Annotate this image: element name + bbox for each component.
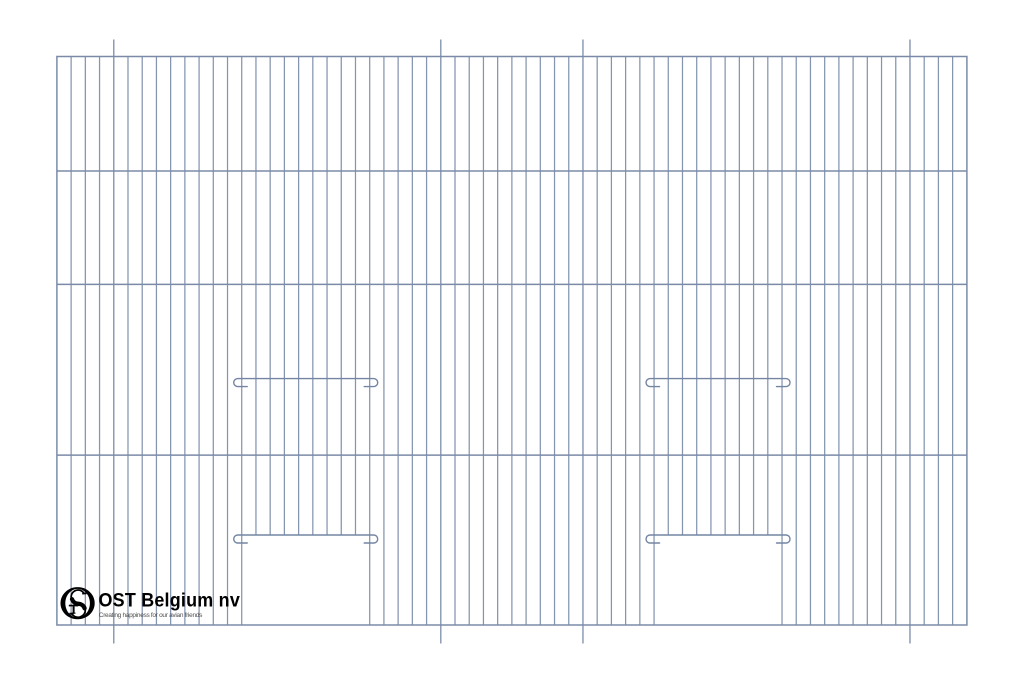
svg-text:OST Belgium nv: OST Belgium nv [99,589,241,611]
svg-text:Creating happiness for our avi: Creating happiness for our avian friends [99,612,203,619]
